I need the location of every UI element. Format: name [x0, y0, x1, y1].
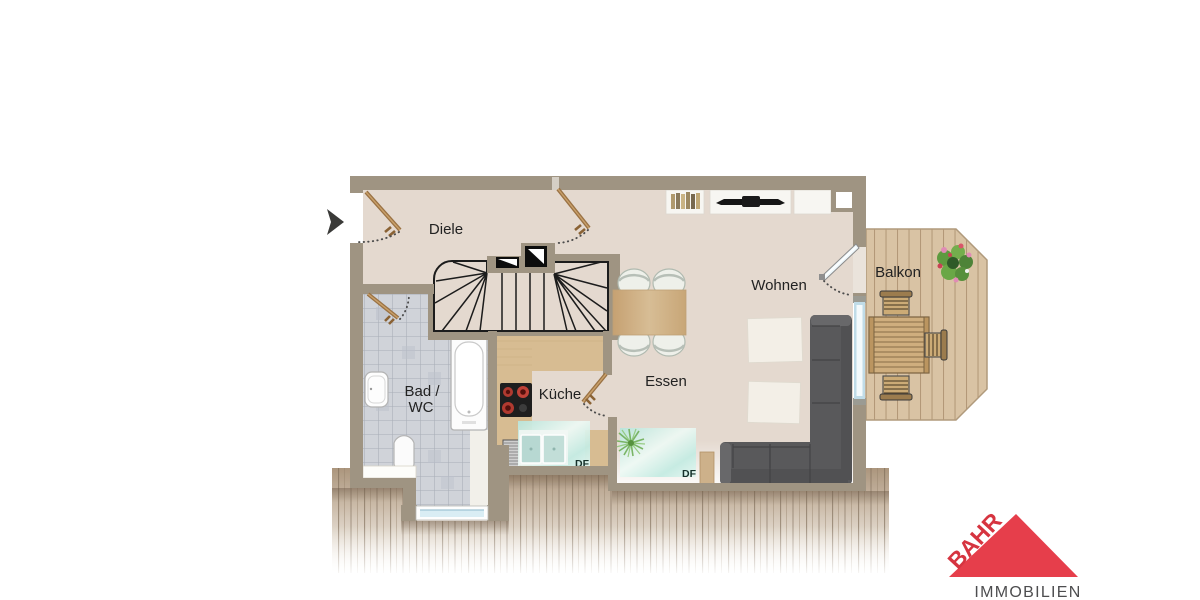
svg-text:DF: DF — [682, 468, 697, 480]
svg-text:Bad /: Bad / — [404, 383, 440, 400]
svg-text:IMMOBILIEN: IMMOBILIEN — [974, 584, 1081, 600]
svg-text:WC: WC — [409, 399, 434, 416]
svg-text:Balkon: Balkon — [875, 264, 921, 281]
svg-text:Küche: Küche — [539, 386, 582, 403]
svg-text:Wohnen: Wohnen — [751, 277, 807, 294]
svg-text:Essen: Essen — [645, 373, 687, 390]
svg-text:Diele: Diele — [429, 221, 463, 238]
